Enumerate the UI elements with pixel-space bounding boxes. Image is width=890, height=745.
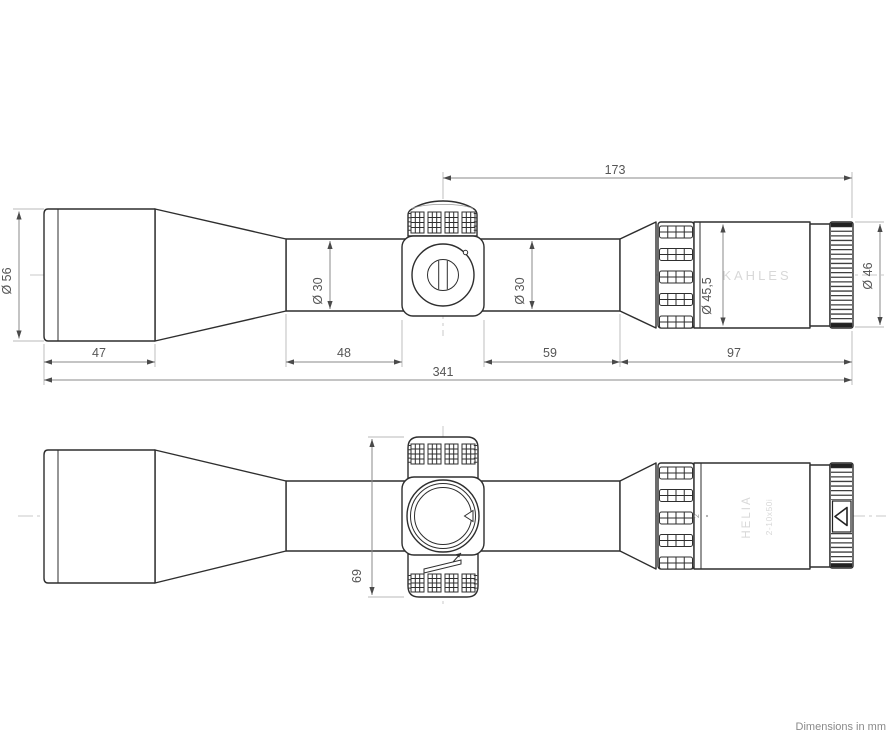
drawing-note: Dimensions in mm bbox=[796, 721, 886, 733]
top-view: 2 HELIA 2-10x50i bbox=[18, 426, 886, 607]
dim-label-rear-assembly: 173 bbox=[605, 163, 626, 177]
objective-taper bbox=[155, 450, 286, 583]
spec-text: 2-10x50i bbox=[764, 499, 774, 536]
side-view: KAHLES bbox=[30, 200, 886, 341]
magnification-ring bbox=[658, 222, 694, 328]
elevation-turret-top bbox=[407, 480, 479, 552]
objective-bell bbox=[44, 450, 155, 583]
brand-text: KAHLES bbox=[722, 268, 791, 283]
index-dot bbox=[463, 250, 467, 254]
dim-label-eyepiece-diameter: Ø 45,5 bbox=[700, 277, 714, 315]
dim-label-objective-diameter: Ø 56 bbox=[0, 267, 14, 294]
dim-label-eyepiece-length: 97 bbox=[727, 346, 741, 360]
elevation-turret bbox=[408, 201, 477, 236]
diopter-ring bbox=[830, 222, 853, 328]
dim-label-total-length: 341 bbox=[433, 365, 454, 379]
dim-label-tube-diameter-rear: Ø 30 bbox=[513, 277, 527, 304]
rear-taper bbox=[620, 222, 656, 328]
zoom-index-dot bbox=[706, 515, 708, 517]
objective-bell bbox=[44, 209, 155, 341]
dim-label-rear-tube: 59 bbox=[543, 346, 557, 360]
diopter-ring bbox=[830, 463, 853, 568]
dim-label-eyering-diameter: Ø 46 bbox=[861, 262, 875, 289]
rear-taper bbox=[620, 463, 656, 569]
dim-label-objective-length: 47 bbox=[92, 346, 106, 360]
windage-turret-top bbox=[408, 437, 478, 479]
dim-label-front-tube: 48 bbox=[337, 346, 351, 360]
technical-drawing-page: KAHLES Ø 56 bbox=[0, 0, 890, 745]
dim-label-turret-span: 69 bbox=[350, 569, 364, 583]
eyepiece-connector bbox=[810, 465, 830, 567]
windage-turret-face bbox=[412, 244, 474, 306]
riflescope-dimension-drawing: KAHLES Ø 56 bbox=[0, 0, 890, 745]
dim-label-tube-diameter-front: Ø 30 bbox=[311, 277, 325, 304]
illumination-turret-bottom bbox=[408, 554, 478, 597]
model-text: HELIA bbox=[741, 495, 753, 538]
eyepiece-connector bbox=[810, 224, 830, 326]
objective-taper bbox=[155, 209, 286, 341]
zoom-index-text: 2 bbox=[694, 514, 701, 518]
magnification-ring bbox=[658, 463, 694, 569]
